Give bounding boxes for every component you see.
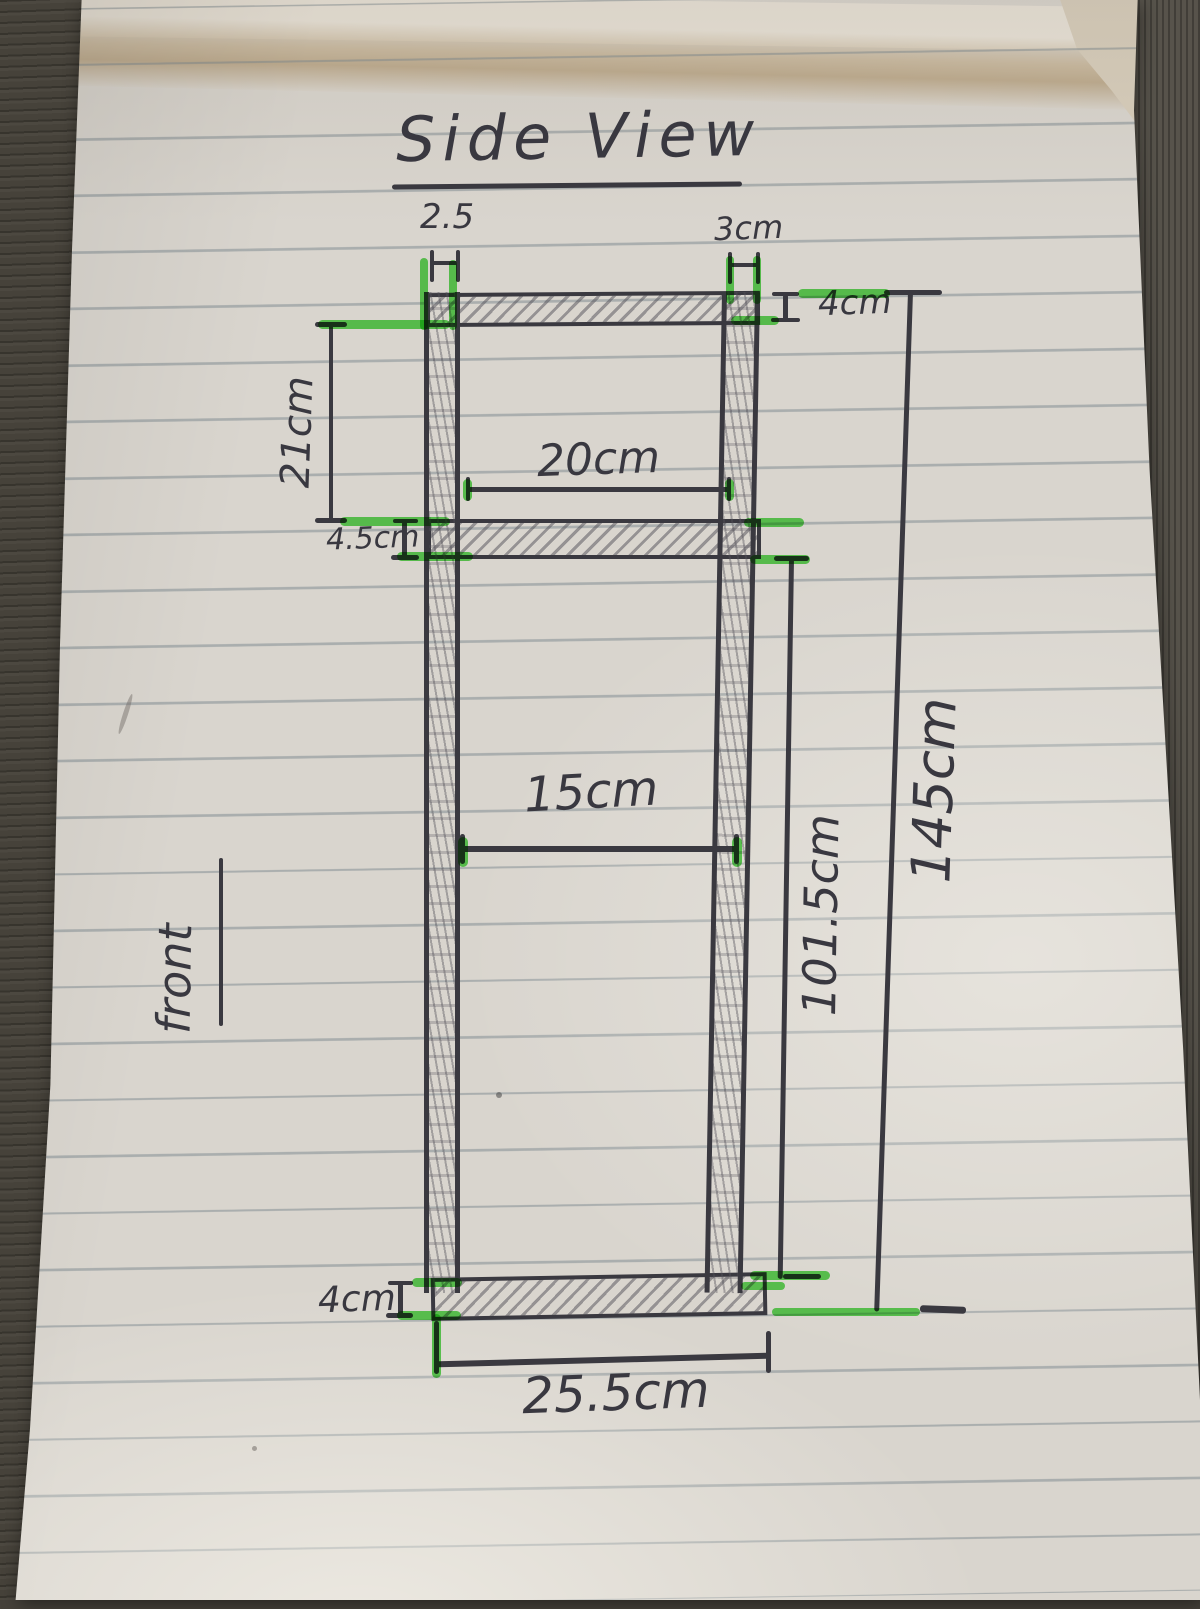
front-label: front — [150, 856, 199, 1035]
highlight-15cm-right-end — [732, 837, 742, 867]
highlight-20cm-right-end — [725, 479, 734, 501]
notepad-paper: Side View 2.5 3cm 4cm 145cm 101.5cm — [0, 0, 1200, 1600]
dim-right-wall-label: 3cm — [713, 211, 783, 245]
dim-upper-width-bar — [467, 487, 730, 492]
dim-lower-width-bar — [462, 846, 739, 852]
dim-upper-width-label: 20cm — [536, 436, 661, 484]
highlight-bottom-left-lower — [397, 1311, 461, 1320]
highlight-right-wall-inner-top — [726, 256, 734, 304]
dim-left-wall-tick-l — [430, 250, 434, 282]
dim-bottom-panel-label: 4cm — [317, 1281, 396, 1320]
dim-left-wall-label: 2.5 — [420, 200, 474, 234]
highlight-top-right-lower — [731, 316, 779, 325]
dim-overall-height-label: 145cm — [904, 667, 965, 884]
ink-dot-2 — [252, 1446, 257, 1451]
highlight-15cm-left-end — [458, 837, 468, 867]
page-title: Side View — [395, 103, 761, 171]
left-wall — [424, 292, 460, 1293]
dim-lower-width-label: 15cm — [523, 765, 660, 820]
dim-upper-height-line — [329, 325, 333, 523]
notepad-paper-wrap: Side View 2.5 3cm 4cm 145cm 101.5cm — [0, 0, 1200, 1600]
dim-top-panel-serif-top — [772, 292, 799, 296]
highlight-bottom-left-upper — [412, 1278, 462, 1287]
middle-shelf — [427, 519, 761, 559]
highlight-shelf-top-right — [744, 518, 804, 527]
highlight-shelf-bottom-right — [750, 555, 810, 564]
highlight-depth-tick — [432, 1314, 441, 1378]
dim-upper-height-label: 21cm — [276, 347, 321, 488]
top-panel — [426, 291, 760, 327]
highlight-bottom-right-upper — [750, 1271, 830, 1280]
highlight-bottom-right-long — [772, 1308, 920, 1316]
highlight-shelf-bottom-left — [397, 552, 473, 561]
highlight-upper-left-top — [318, 320, 450, 329]
dim-lower-height-label: 101.5cm — [796, 786, 846, 1017]
highlight-right-wall-outer-top — [753, 256, 761, 304]
dim-depth-tick-r — [766, 1331, 771, 1373]
highlight-left-wall-inner-top — [449, 260, 457, 330]
dim-bottom-panel-serif-top — [388, 1281, 413, 1285]
highlight-shelf-top-left — [340, 517, 450, 526]
highlight-bottom-panel-right — [741, 1282, 785, 1290]
highlight-top-right-upper — [798, 289, 890, 298]
ink-dot — [496, 1092, 502, 1098]
front-underline — [219, 858, 223, 1026]
dim-overall-height-top-bar — [884, 290, 942, 295]
dim-depth-label: 25.5cm — [521, 1365, 710, 1422]
highlight-20cm-left-end — [463, 479, 472, 501]
